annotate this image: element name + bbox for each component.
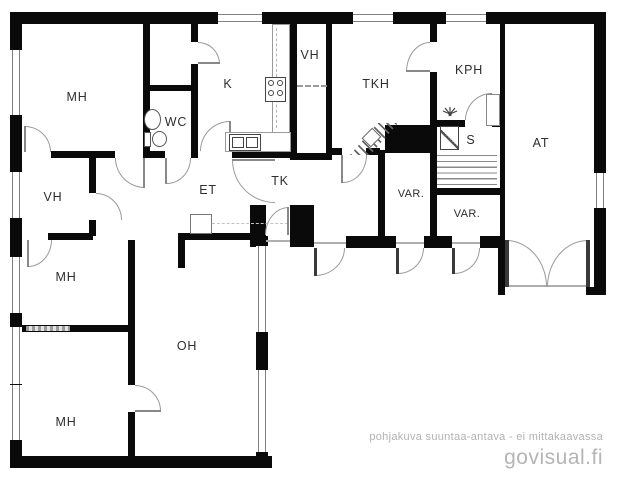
wall-segment	[178, 233, 253, 240]
door-threshold	[452, 242, 480, 244]
wc-sink-icon	[144, 109, 161, 130]
door-leaf	[135, 410, 161, 412]
toilet-icon	[152, 131, 167, 147]
wall-segment	[500, 24, 505, 236]
sink-basin	[246, 137, 258, 148]
sliding-door-symbol	[297, 85, 327, 87]
door-leaf	[198, 62, 220, 64]
window-symbol	[10, 50, 22, 115]
door-leaf	[314, 248, 317, 276]
closet-strip	[26, 326, 70, 331]
wall-segment	[250, 205, 266, 247]
stove-burner	[277, 90, 283, 96]
wall-segment	[430, 24, 437, 42]
window-symbol	[10, 327, 22, 384]
wall-segment	[326, 24, 332, 155]
wall-segment	[191, 64, 198, 91]
door-arc	[265, 207, 289, 235]
disclaimer-text: pohjakuva suuntaa-antava - ei mittakaava…	[369, 431, 603, 443]
wall-segment	[10, 456, 272, 468]
door-arc	[454, 248, 480, 274]
room-label-tkh: TKH	[362, 77, 389, 91]
door-leaf	[143, 158, 145, 188]
wall-segment	[586, 287, 606, 295]
door-leaf	[505, 240, 509, 287]
door-leaf	[287, 207, 289, 235]
window-symbol	[10, 172, 22, 218]
door-leaf	[165, 158, 167, 184]
wall-segment	[143, 85, 198, 91]
room-label-mh-3: MH	[55, 415, 76, 429]
window-symbol	[256, 246, 268, 332]
door-arc	[115, 158, 145, 188]
floor-plan-canvas: MH VH MH MH OH ET WC K VH TK TKH KPH S V…	[0, 0, 632, 480]
door-arc	[547, 240, 588, 287]
wall-segment	[424, 236, 452, 248]
stove-burner	[268, 80, 274, 86]
shower-icon	[441, 101, 459, 117]
door-leaf	[341, 155, 343, 183]
sauna-stove-icon	[440, 126, 459, 150]
wall-segment	[232, 151, 290, 158]
wall-segment	[128, 412, 135, 456]
door-leaf	[232, 159, 275, 161]
wall-segment	[430, 72, 437, 236]
stove-burner	[277, 80, 283, 86]
wall-segment	[191, 91, 198, 158]
wall-segment	[191, 24, 198, 42]
door-leaf	[586, 240, 590, 287]
wall-segment	[51, 151, 115, 158]
door-arc	[25, 126, 51, 152]
door-arc	[506, 240, 547, 287]
room-label-wc: WC	[165, 115, 187, 129]
room-label-vh-1: VH	[44, 190, 63, 204]
room-label-var-1: VAR.	[398, 188, 424, 200]
wall-segment	[346, 236, 396, 248]
wall-segment	[594, 12, 606, 295]
wall-segment	[290, 205, 314, 247]
door-arc	[398, 248, 424, 274]
door-threshold	[266, 240, 290, 242]
door-arc	[315, 248, 345, 276]
room-label-tk: TK	[271, 174, 289, 188]
door-leaf	[452, 248, 455, 274]
window-symbol	[446, 12, 486, 24]
room-label-at: AT	[533, 136, 550, 150]
wall-segment	[89, 155, 96, 193]
water-heater	[486, 94, 500, 126]
window-symbol	[594, 173, 606, 208]
window-symbol	[10, 257, 22, 313]
wall-segment	[332, 148, 342, 155]
door-arc	[232, 160, 275, 203]
sauna-benches	[437, 155, 497, 188]
window-symbol	[218, 12, 262, 24]
door-arc	[198, 42, 220, 64]
room-label-var-2: VAR.	[454, 208, 480, 220]
wall-segment	[128, 240, 135, 385]
room-label-s: S	[466, 133, 475, 147]
window-symbol	[353, 12, 393, 24]
room-label-oh: OH	[177, 339, 197, 353]
wall-segment	[378, 150, 385, 236]
toilet-icon	[144, 132, 151, 147]
door-threshold	[314, 242, 346, 244]
wall-segment	[437, 188, 500, 195]
door-leaf	[406, 70, 430, 72]
brand-logo: govisual.fi	[504, 446, 603, 470]
door-leaf	[27, 240, 29, 267]
hall-cabinet	[190, 214, 212, 234]
wall-segment	[290, 24, 297, 160]
door-leaf	[24, 126, 26, 152]
door-arc	[343, 155, 367, 183]
room-label-kph: KPH	[455, 63, 483, 77]
room-label-et: ET	[199, 183, 217, 197]
wall-segment	[178, 233, 185, 268]
room-label-mh-2: MH	[55, 270, 76, 284]
room-label-k: K	[223, 77, 232, 91]
door-arc	[167, 158, 191, 184]
room-label-mh-1: MH	[66, 90, 87, 104]
room-label-vh-2: VH	[301, 48, 320, 62]
stove-burner	[268, 90, 274, 96]
wall-segment	[498, 236, 505, 295]
door-threshold	[396, 242, 424, 244]
wall-segment	[48, 233, 93, 240]
door-arc	[96, 193, 122, 220]
window-symbol	[256, 370, 268, 452]
wall-segment	[10, 12, 606, 24]
door-arc	[406, 42, 430, 72]
door-leaf	[396, 248, 399, 274]
wall-segment	[143, 151, 165, 158]
sink-basin	[232, 137, 244, 148]
door-arc	[135, 385, 161, 411]
window-symbol	[10, 385, 22, 440]
door-arc	[28, 240, 52, 267]
